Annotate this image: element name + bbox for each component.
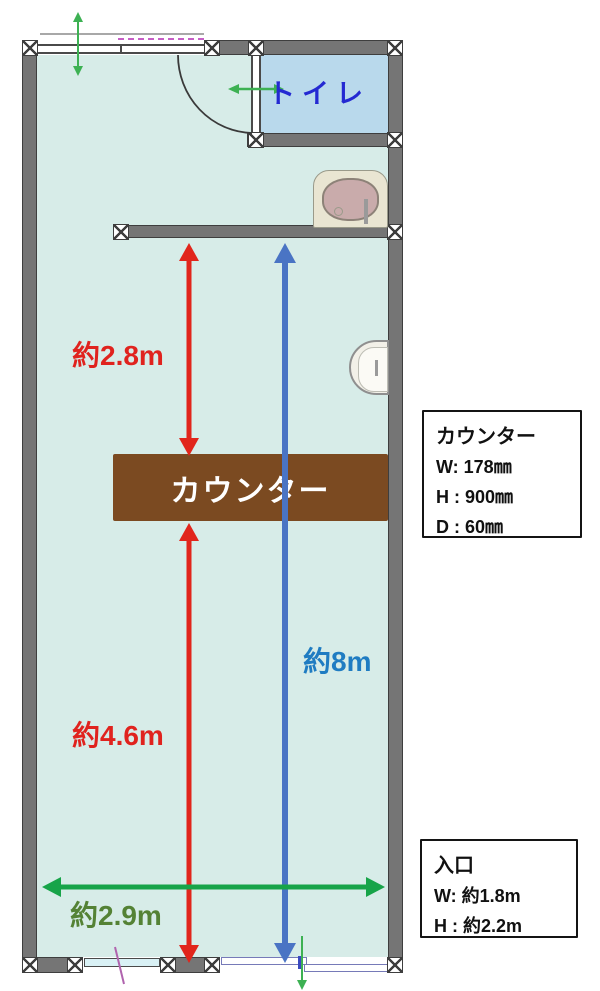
wall-right bbox=[388, 40, 403, 973]
entrance-sliding-panel-a bbox=[221, 957, 307, 965]
hand-wash-basin bbox=[358, 347, 388, 392]
dimension-label-8m: 約8m bbox=[303, 640, 371, 680]
counter-block: カウンター bbox=[113, 454, 388, 521]
entrance-spec-callout: 入口 W: 約1.8m H : 約2.2m bbox=[420, 839, 578, 938]
counter-spec-title: カウンター bbox=[436, 420, 568, 449]
column-marker bbox=[248, 132, 264, 148]
counter-spec-height: H : 900㎜ bbox=[436, 482, 568, 512]
entrance-spec-title: 入口 bbox=[434, 849, 564, 878]
top-window-divider bbox=[120, 44, 122, 54]
column-marker bbox=[248, 40, 264, 56]
sink-basin bbox=[322, 178, 379, 221]
column-marker bbox=[160, 957, 176, 973]
hand-wash-faucet-icon bbox=[375, 360, 378, 376]
wall-top bbox=[219, 40, 403, 55]
column-marker bbox=[22, 957, 38, 973]
bottom-window bbox=[84, 958, 160, 967]
column-marker bbox=[387, 957, 403, 973]
toilet-partition-wall bbox=[251, 55, 261, 133]
sink-faucet-icon bbox=[364, 199, 368, 224]
column-marker bbox=[204, 957, 220, 973]
column-marker bbox=[387, 132, 403, 148]
counter-spec-depth: D : 60㎜ bbox=[436, 512, 568, 542]
counter-spec-width: W: 178㎜ bbox=[436, 452, 568, 482]
entrance-spec-width: W: 約1.8m bbox=[434, 881, 564, 911]
toilet-room-label: トイレ bbox=[268, 72, 370, 111]
entrance-spec-height: H : 約2.2m bbox=[434, 911, 564, 941]
counter-spec-callout: カウンター W: 178㎜ H : 900㎜ D : 60㎜ bbox=[422, 410, 582, 538]
column-marker bbox=[113, 224, 129, 240]
column-marker bbox=[22, 40, 38, 56]
wall-bottom-segment-a bbox=[37, 957, 69, 973]
wall-left bbox=[22, 40, 37, 973]
sink-drain-icon bbox=[334, 207, 343, 216]
dimension-label-2-8m: 約2.8m bbox=[72, 334, 164, 374]
top-window-track bbox=[40, 33, 204, 35]
column-marker bbox=[387, 40, 403, 56]
entrance-door-handle bbox=[298, 956, 302, 969]
floor-plan: カウンター bbox=[0, 0, 600, 991]
top-window-dashed-line bbox=[118, 38, 204, 40]
entrance-sliding-panel-b bbox=[304, 964, 388, 972]
dimension-label-4-6m: 約4.6m bbox=[72, 714, 164, 754]
counter-block-label: カウンター bbox=[171, 466, 331, 510]
column-marker bbox=[204, 40, 220, 56]
dimension-label-2-9m: 約2.9m bbox=[70, 894, 162, 934]
wall-bottom-segment-b bbox=[175, 957, 206, 973]
sink-fixture bbox=[313, 170, 388, 228]
column-marker bbox=[67, 957, 83, 973]
wall-toilet-bottom bbox=[247, 133, 403, 147]
column-marker bbox=[387, 224, 403, 240]
